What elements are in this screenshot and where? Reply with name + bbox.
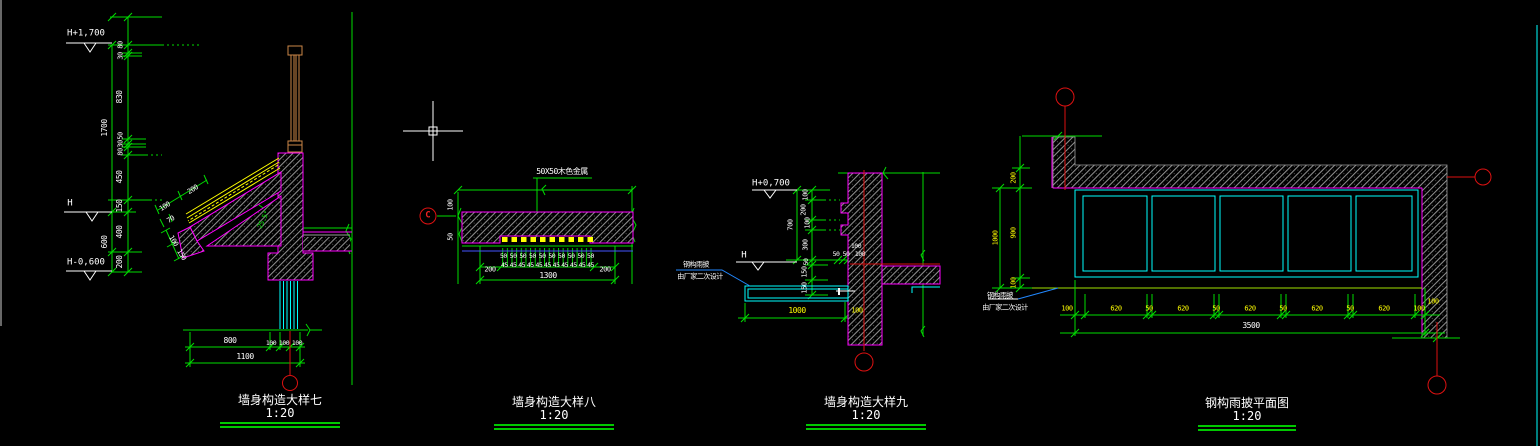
dim-label: 1100 <box>236 353 253 361</box>
dim-label: 400 <box>116 226 124 239</box>
dim-label: 50 <box>1279 306 1286 313</box>
detail8-title: 墙身构造大样八 1:20 <box>494 396 614 430</box>
grid-bubble-letter: C <box>425 212 430 221</box>
dim-label: 45 <box>570 262 577 269</box>
dim-label: 50 <box>548 253 555 260</box>
dim-label: 50 <box>1346 306 1353 313</box>
dim-label: 450 <box>116 171 124 184</box>
dim-label: 620 <box>1311 306 1322 313</box>
title-underline <box>806 424 926 430</box>
canopy-frame <box>1075 190 1418 277</box>
dim-label: 100 <box>1413 306 1424 313</box>
dim-label: 50 <box>529 253 536 260</box>
note-text: 钢构雨披 <box>683 262 709 269</box>
dim-label: 50 <box>510 253 517 260</box>
canopy-slab <box>462 212 633 243</box>
dim-label: 50 <box>1145 306 1152 313</box>
dim-label: 100 <box>292 340 302 347</box>
dim-label: 50 <box>558 253 565 260</box>
dim-row-50: 50505050505050505050 <box>500 253 594 260</box>
dim-label: 150 <box>802 282 809 293</box>
dim-label: 1000 <box>788 307 805 315</box>
dim-label: 50 <box>577 253 584 260</box>
steel-canopy <box>745 286 848 301</box>
elevation-label: H-0,600 <box>67 259 105 268</box>
title-underline <box>220 422 340 428</box>
dim-label: 900 <box>1011 227 1018 238</box>
dim-label: 150 <box>802 266 809 277</box>
dim-label: 45 <box>518 262 525 269</box>
note-text: 由厂家二次设计 <box>982 305 1028 312</box>
dim-label: 1300 <box>539 272 556 280</box>
cad-drawing-canvas[interactable]: H+1,700 H H-0,600 1700 600 80 30 830 50 … <box>0 0 1540 446</box>
dim-label: 50 <box>843 251 850 258</box>
scale-label: 1:20 <box>852 408 881 422</box>
dim-label: 600 <box>101 236 109 249</box>
dim-label: 620 <box>1244 306 1255 313</box>
dim-label: 50 <box>519 253 526 260</box>
dim-label: 50 <box>587 253 594 260</box>
dim-label: 45 <box>578 262 585 269</box>
dim-label: 80 <box>118 41 125 48</box>
dim-label: 45 <box>501 262 508 269</box>
metal-battens <box>502 237 593 242</box>
dim-label: 45 <box>544 262 551 269</box>
dim-label: 30 <box>118 140 125 147</box>
dim-label: 700 <box>788 219 795 230</box>
dim-label: 200 <box>1011 172 1018 183</box>
drawing-linework <box>0 0 1540 446</box>
dim-label: 80 <box>118 148 125 155</box>
dim-label: 100 <box>805 217 812 228</box>
detail9-title: 墙身构造大样九 1:20 <box>806 396 926 430</box>
floor-slab <box>882 266 940 284</box>
dim-label: 50 <box>448 233 455 240</box>
title-text: 墙身构造大样九 <box>824 395 908 409</box>
dim-label: 800 <box>224 337 237 345</box>
dim-label: 1000 <box>993 231 1000 246</box>
elevation-label: H+0,700 <box>752 180 790 189</box>
crosshair-cursor <box>403 101 463 161</box>
scale-label: 1:20 <box>540 408 569 422</box>
axis-bubble <box>283 376 298 391</box>
dim-label: 45 <box>587 262 594 269</box>
dim-label: 100 <box>448 199 455 210</box>
title-underline <box>1198 425 1296 431</box>
dim-label: 100 <box>1427 299 1438 306</box>
plan-linework <box>988 88 1491 394</box>
material-label: 50X50木色金属 <box>536 168 588 176</box>
axis-bubble <box>855 353 873 371</box>
sloped-canopy <box>178 158 281 258</box>
dim-label: 45 <box>561 262 568 269</box>
dim-label: 100 <box>279 340 289 347</box>
dim-label: 620 <box>1110 306 1121 313</box>
dim-label: 1700 <box>101 119 109 136</box>
dim-label: 50 <box>539 253 546 260</box>
dim-label: 200 <box>484 267 495 274</box>
dim-label: 3500 <box>1242 322 1259 330</box>
dim-label: 200 <box>116 256 124 269</box>
railing-post <box>288 46 302 152</box>
dim-label: 200 <box>599 267 610 274</box>
floor-slab <box>303 232 352 251</box>
dim-label: 45 <box>553 262 560 269</box>
dim-label: 30 <box>118 52 125 59</box>
dim-label: 150 <box>116 200 124 213</box>
dim-label: 100 <box>851 243 861 250</box>
plan-title: 钢构雨披平面图1:20 <box>1198 397 1296 431</box>
dim-label: 620 <box>1378 306 1389 313</box>
dim-label: 50 <box>568 253 575 260</box>
dim-label: 100 <box>1011 277 1018 288</box>
title-text: 墙身构造大样七 <box>238 393 322 407</box>
dim-label: 200 <box>801 204 808 215</box>
dim-label: 830 <box>116 91 124 104</box>
dim-row-45: 4545454545454545454545 <box>501 262 594 269</box>
elevation-label: H <box>741 252 746 261</box>
leader-line <box>1018 288 1058 299</box>
dim-label: 50 <box>500 253 507 260</box>
note-text: 钢构雨披 <box>987 293 1013 300</box>
dim-label: 45 <box>510 262 517 269</box>
title-text: 钢构雨披平面图 <box>1205 396 1289 410</box>
dim-label: 100 <box>803 189 810 200</box>
dim-label: 50 <box>118 132 125 139</box>
dim-label: 50 <box>1212 306 1219 313</box>
scale-label: 1:20 <box>266 406 295 420</box>
detail7-linework <box>64 12 352 391</box>
title-underline <box>494 424 614 430</box>
note-text: 由厂家二次设计 <box>677 274 723 281</box>
dim-label: 50 <box>803 259 810 266</box>
dim-label: 45 <box>527 262 534 269</box>
scale-label: 1:20 <box>1233 409 1262 423</box>
detail7-title: 墙身构造大样七 1:20 <box>220 394 340 428</box>
downpipe <box>280 281 298 329</box>
dim-label: 100 <box>1061 306 1072 313</box>
title-text: 墙身构造大样八 <box>512 395 596 409</box>
dim-label: 100 <box>266 340 276 347</box>
dim-label: 45 <box>535 262 542 269</box>
wall-section <box>841 173 882 345</box>
dim-label: 100 <box>855 251 865 258</box>
elevation-label: H+1,700 <box>67 30 105 39</box>
dim-label: 300 <box>803 239 810 250</box>
dim-label: 100 <box>851 308 862 315</box>
elevation-label: H <box>67 200 72 209</box>
dim-label: 620 <box>1177 306 1188 313</box>
dim-label: 50 <box>833 251 840 258</box>
